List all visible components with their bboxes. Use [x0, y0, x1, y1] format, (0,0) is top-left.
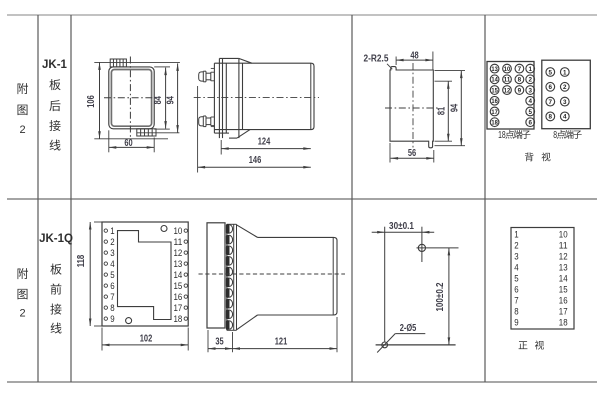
svg-text:12: 12 — [174, 248, 183, 259]
svg-text:8: 8 — [110, 303, 114, 314]
svg-text:10: 10 — [559, 229, 568, 240]
svg-text:14: 14 — [559, 274, 568, 285]
svg-text:4: 4 — [514, 262, 518, 273]
svg-text:18: 18 — [559, 318, 568, 329]
svg-text:11: 11 — [504, 77, 511, 84]
svg-text:14: 14 — [174, 270, 183, 281]
svg-text:1: 1 — [528, 66, 532, 73]
svg-text:18: 18 — [491, 120, 498, 127]
svg-text:4: 4 — [528, 98, 532, 105]
svg-text:11: 11 — [174, 237, 183, 248]
svg-text:18: 18 — [498, 130, 506, 141]
svg-text:17: 17 — [491, 109, 498, 116]
svg-text:4: 4 — [563, 114, 567, 121]
svg-text:14: 14 — [491, 77, 498, 84]
svg-text:15: 15 — [174, 281, 183, 292]
svg-text:13: 13 — [174, 259, 183, 270]
svg-text:3: 3 — [563, 99, 567, 106]
svg-text:84: 84 — [153, 96, 164, 105]
svg-text:2: 2 — [110, 237, 114, 248]
svg-text:60: 60 — [124, 138, 133, 149]
svg-text:JK-1Q: JK-1Q — [39, 233, 73, 245]
svg-text:2: 2 — [19, 308, 25, 320]
svg-text:5: 5 — [528, 109, 532, 116]
svg-text:4: 4 — [110, 259, 114, 270]
svg-text:7: 7 — [514, 296, 518, 307]
svg-text:2-R2.5: 2-R2.5 — [364, 54, 389, 65]
svg-text:35: 35 — [215, 337, 224, 348]
svg-text:2: 2 — [19, 124, 25, 136]
svg-text:56: 56 — [408, 148, 417, 159]
svg-text:8: 8 — [553, 130, 557, 141]
svg-text:2-Ø5: 2-Ø5 — [400, 323, 417, 334]
svg-text:30±0.1: 30±0.1 — [389, 221, 414, 232]
svg-text:121: 121 — [275, 337, 288, 348]
svg-text:48: 48 — [410, 50, 419, 61]
svg-text:16: 16 — [174, 292, 183, 303]
svg-text:10: 10 — [174, 226, 183, 237]
svg-text:5: 5 — [549, 69, 553, 76]
svg-text:15: 15 — [559, 285, 568, 296]
svg-text:16: 16 — [491, 98, 498, 105]
svg-text:5: 5 — [514, 274, 518, 285]
svg-text:8: 8 — [518, 77, 522, 84]
svg-text:13: 13 — [491, 66, 498, 73]
svg-text:102: 102 — [140, 333, 153, 344]
svg-text:17: 17 — [174, 303, 183, 314]
svg-text:JK-1: JK-1 — [42, 59, 68, 71]
svg-text:3: 3 — [514, 251, 518, 262]
svg-text:146: 146 — [249, 155, 262, 166]
svg-text:106: 106 — [86, 95, 97, 108]
svg-text:6: 6 — [514, 285, 518, 296]
svg-text:5: 5 — [110, 270, 114, 281]
svg-text:6: 6 — [110, 281, 114, 292]
svg-text:124: 124 — [258, 137, 271, 148]
svg-text:12: 12 — [559, 251, 568, 262]
svg-text:15: 15 — [491, 87, 498, 94]
svg-text:1: 1 — [563, 69, 567, 76]
svg-text:2: 2 — [528, 77, 532, 84]
svg-text:7: 7 — [110, 292, 114, 303]
svg-text:18: 18 — [174, 314, 183, 325]
svg-text:3: 3 — [528, 87, 532, 94]
svg-text:1: 1 — [110, 226, 114, 237]
svg-text:8: 8 — [549, 114, 553, 121]
svg-text:7: 7 — [549, 99, 553, 106]
svg-text:9: 9 — [514, 318, 518, 329]
svg-text:12: 12 — [504, 87, 511, 94]
svg-text:8: 8 — [514, 307, 518, 318]
svg-text:94: 94 — [450, 104, 461, 113]
svg-text:9: 9 — [110, 314, 114, 325]
svg-text:16: 16 — [559, 296, 568, 307]
svg-text:11: 11 — [559, 240, 568, 251]
svg-text:7: 7 — [518, 66, 522, 73]
svg-text:3: 3 — [110, 248, 114, 259]
svg-text:1: 1 — [514, 229, 518, 240]
svg-text:10: 10 — [504, 66, 511, 73]
svg-text:81: 81 — [437, 107, 448, 116]
svg-text:6: 6 — [528, 120, 532, 127]
svg-text:17: 17 — [559, 307, 568, 318]
svg-text:118: 118 — [76, 254, 87, 267]
svg-text:6: 6 — [549, 84, 553, 91]
svg-text:100±0.2: 100±0.2 — [435, 282, 446, 311]
svg-text:9: 9 — [518, 87, 522, 94]
svg-text:2: 2 — [563, 84, 567, 91]
svg-text:2: 2 — [514, 240, 518, 251]
svg-text:94: 94 — [165, 96, 176, 105]
svg-text:13: 13 — [559, 262, 568, 273]
